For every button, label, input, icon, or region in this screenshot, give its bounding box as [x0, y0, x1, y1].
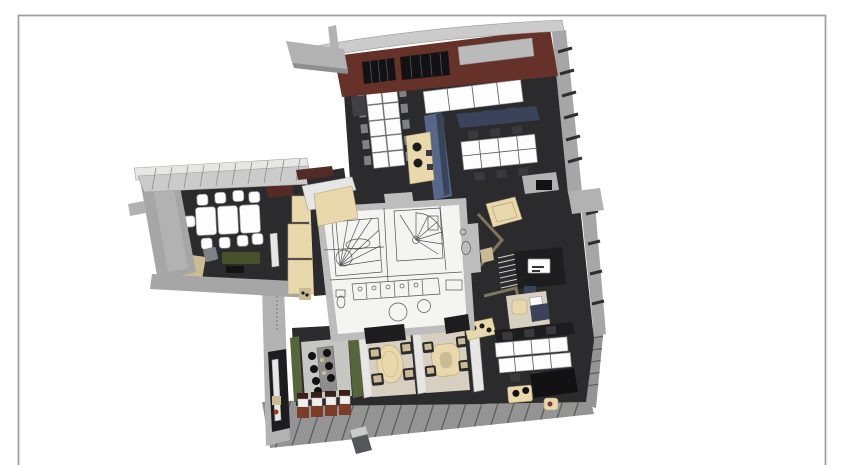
beige-cabinets [288, 196, 314, 300]
west-meeting-wing [128, 158, 314, 300]
dark-cabinet [351, 95, 367, 116]
slide-page [0, 0, 843, 465]
building [128, 20, 606, 454]
armchair [512, 300, 527, 314]
mini-table-group [507, 385, 532, 403]
mini-table [507, 385, 532, 403]
conference-table [195, 207, 216, 236]
corner-cabinet [568, 188, 604, 214]
lounge-sofa [222, 252, 260, 264]
stool [299, 288, 311, 300]
coffee-table [226, 266, 244, 273]
stool-counter [406, 132, 434, 184]
floorplan-render [0, 0, 843, 465]
chair [197, 194, 209, 206]
wall-stub [128, 201, 146, 216]
extinguisher [274, 410, 279, 415]
southwest-wall [262, 284, 290, 446]
door-box [272, 396, 281, 405]
